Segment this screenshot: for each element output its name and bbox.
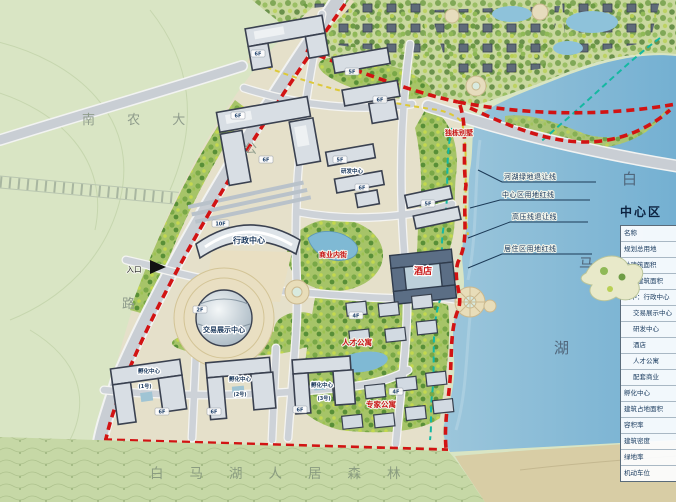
legend-row: 建筑占地面积 bbox=[621, 402, 676, 418]
svg-text:专家公寓: 专家公寓 bbox=[366, 399, 396, 409]
svg-text:6F: 6F bbox=[297, 408, 304, 414]
svg-text:公: 公 bbox=[244, 142, 271, 157]
svg-text:湖: 湖 bbox=[554, 339, 569, 357]
master-plan-map: 6F 6F 6F 5F 6F 5F 6F 5F 10F 2F 6F 6F 6F … bbox=[0, 0, 676, 502]
legend-row: 名称 bbox=[621, 226, 676, 242]
legend-row: 配套商业 bbox=[621, 370, 676, 386]
svg-text:中心区用地红线: 中心区用地红线 bbox=[502, 190, 555, 199]
svg-text:高压线退让线: 高压线退让线 bbox=[512, 212, 557, 221]
svg-text:(1号): (1号) bbox=[138, 383, 151, 390]
legend-row: 总建筑面积 bbox=[621, 258, 676, 274]
legend-row: 人才公寓 bbox=[621, 354, 676, 370]
svg-text:6F: 6F bbox=[263, 158, 270, 164]
legend-row: 酒店 bbox=[621, 338, 676, 354]
legend-row: 地上建筑面积 bbox=[621, 274, 676, 290]
svg-text:孵化中心: 孵化中心 bbox=[229, 375, 252, 383]
svg-text:5F: 5F bbox=[337, 158, 344, 164]
svg-text:(3号): (3号) bbox=[317, 395, 330, 402]
svg-text:河湖绿地退让线: 河湖绿地退让线 bbox=[504, 172, 557, 181]
legend-title: 中心区 bbox=[620, 203, 676, 220]
svg-text:南 农 大: 南 农 大 bbox=[82, 112, 199, 128]
svg-text:6F: 6F bbox=[211, 410, 218, 416]
legend-row: 规划总用地 bbox=[621, 242, 676, 258]
svg-text:交易展示中心: 交易展示中心 bbox=[203, 325, 245, 334]
svg-text:6F: 6F bbox=[377, 98, 384, 104]
svg-text:6F: 6F bbox=[235, 114, 242, 120]
svg-text:4F: 4F bbox=[393, 390, 400, 396]
svg-text:6F: 6F bbox=[255, 52, 262, 58]
svg-text:研发中心: 研发中心 bbox=[341, 167, 364, 175]
legend-row: 建筑密度 bbox=[621, 434, 676, 450]
svg-text:5F: 5F bbox=[425, 202, 432, 208]
legend-row: 其中：行政中心 bbox=[621, 290, 676, 306]
svg-text:5F: 5F bbox=[349, 70, 356, 76]
legend-row: 机动车位 bbox=[621, 466, 676, 481]
svg-text:商业内街: 商业内街 bbox=[319, 250, 347, 259]
svg-text:居住区用地红线: 居住区用地红线 bbox=[504, 244, 557, 253]
plan-drawing: 6F 6F 6F 5F 6F 5F 6F 5F 10F 2F 6F 6F 6F … bbox=[0, 0, 676, 502]
expo-dome-building bbox=[174, 268, 274, 368]
legend-row: 绿地率 bbox=[621, 450, 676, 466]
svg-text:(2号): (2号) bbox=[233, 391, 246, 398]
svg-text:酒店: 酒店 bbox=[414, 265, 432, 277]
legend-row: 交易展示中心 bbox=[621, 306, 676, 322]
legend-table: 名称 规划总用地 总建筑面积 地上建筑面积 其中：行政中心 交易展示中心 研发中… bbox=[620, 225, 676, 482]
svg-text:路: 路 bbox=[122, 296, 149, 312]
legend-panel: 中心区 名称 规划总用地 总建筑面积 地上建筑面积 其中：行政中心 交易展示中心… bbox=[620, 203, 676, 482]
legend-row: 孵化中心 bbox=[621, 386, 676, 402]
svg-text:10F: 10F bbox=[215, 222, 225, 228]
svg-text:2F: 2F bbox=[197, 308, 204, 314]
legend-row: 研发中心 bbox=[621, 322, 676, 338]
legend-row: 容积率 bbox=[621, 418, 676, 434]
svg-text:白马湖人居森林: 白马湖人居森林 bbox=[150, 466, 427, 482]
svg-text:6F: 6F bbox=[159, 410, 166, 416]
svg-text:马: 马 bbox=[579, 255, 594, 273]
svg-text:行政中心: 行政中心 bbox=[232, 235, 265, 245]
svg-text:4F: 4F bbox=[353, 314, 360, 320]
svg-text:独栋别墅: 独栋别墅 bbox=[444, 128, 473, 137]
svg-text:6F: 6F bbox=[359, 186, 366, 192]
svg-text:人才公寓: 人才公寓 bbox=[342, 337, 372, 347]
svg-text:入口: 入口 bbox=[127, 265, 142, 274]
svg-text:孵化中心: 孵化中心 bbox=[138, 367, 161, 375]
svg-text:孵化中心: 孵化中心 bbox=[311, 381, 334, 389]
svg-text:白: 白 bbox=[622, 170, 637, 188]
